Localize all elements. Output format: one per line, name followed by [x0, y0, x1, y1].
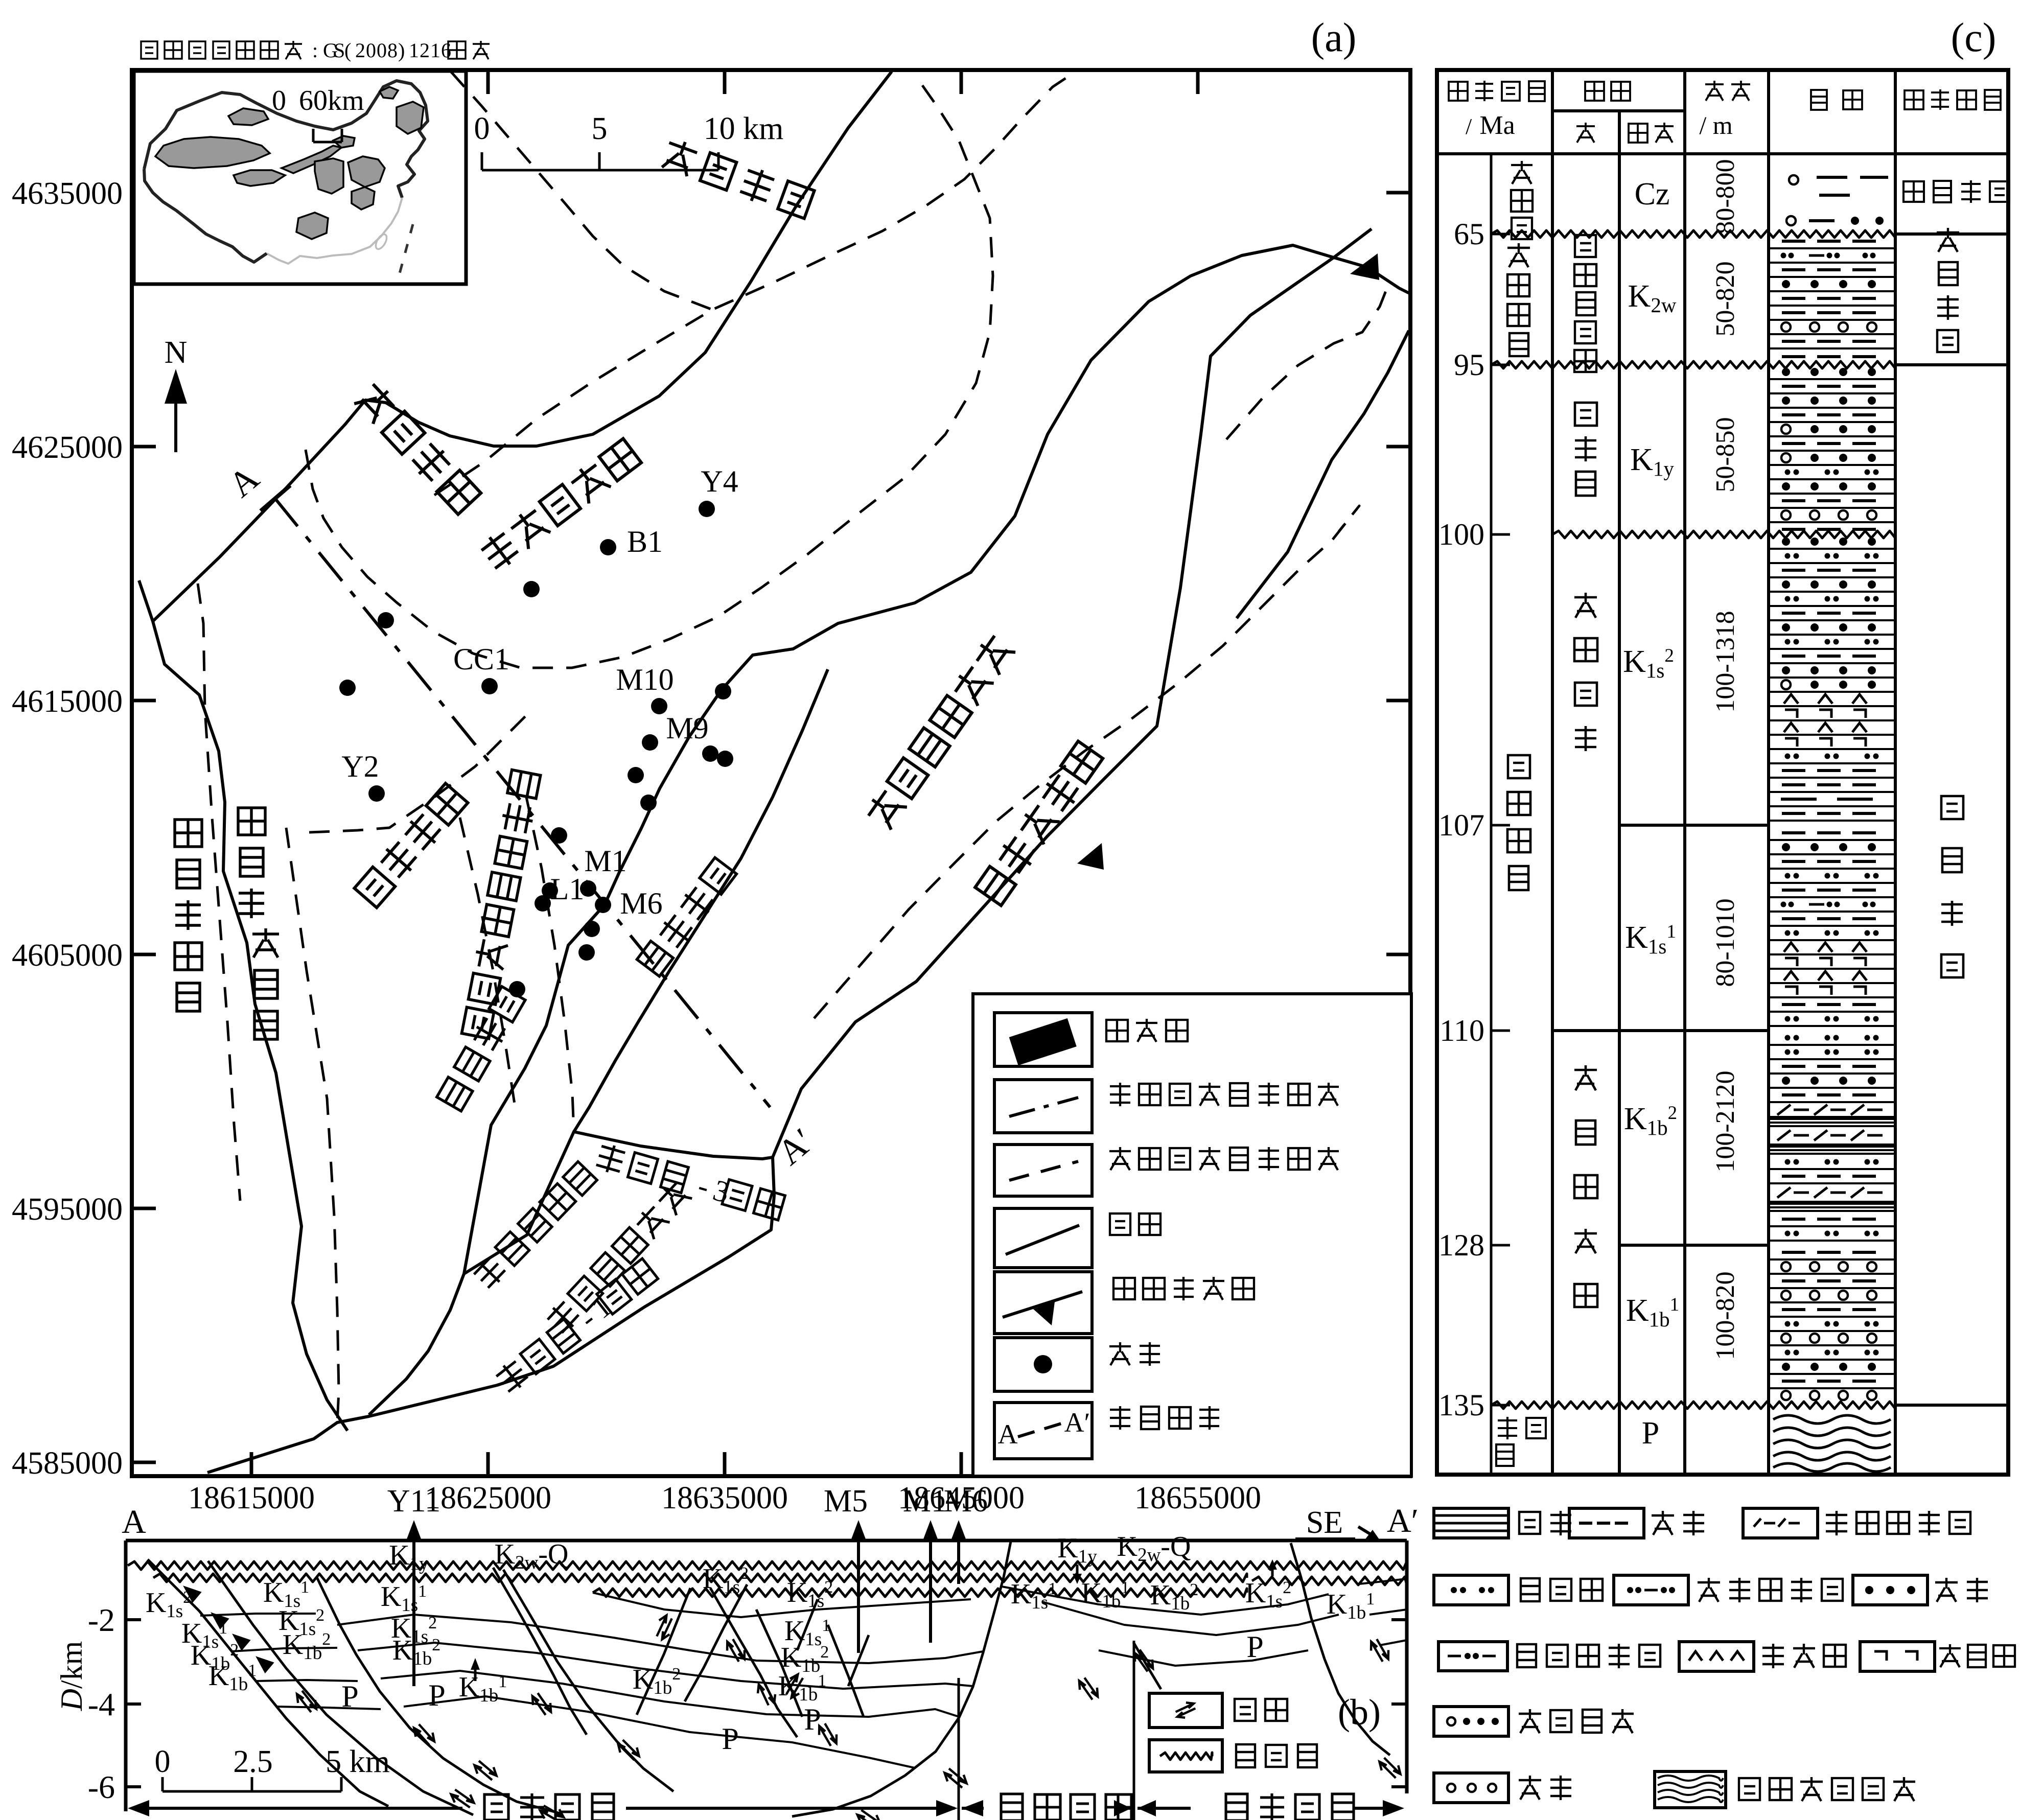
svg-text:N: N [165, 335, 188, 370]
svg-text:2: 2 [420, 39, 430, 62]
svg-text:50-820: 50-820 [1711, 261, 1740, 336]
svg-text:4615000: 4615000 [12, 684, 123, 719]
svg-text:-2: -2 [88, 1602, 115, 1638]
svg-text:65: 65 [1454, 217, 1484, 251]
svg-text:Y11: Y11 [387, 1484, 440, 1519]
svg-text:M10: M10 [616, 663, 674, 696]
svg-text:60km: 60km [299, 85, 364, 116]
svg-text:5: 5 [592, 111, 608, 146]
svg-text:-4: -4 [88, 1686, 115, 1722]
svg-text:100-2120: 100-2120 [1711, 1070, 1740, 1172]
svg-text:A: A [122, 1503, 146, 1541]
svg-text:-6: -6 [88, 1769, 115, 1805]
svg-text:100-820: 100-820 [1711, 1271, 1740, 1360]
svg-text:1: 1 [430, 39, 440, 62]
svg-text:(: ( [344, 39, 351, 62]
svg-text:M1: M1 [584, 844, 626, 878]
svg-text:2: 2 [355, 39, 365, 62]
svg-text:P: P [1642, 1416, 1659, 1451]
svg-text:P: P [341, 1679, 358, 1713]
svg-text:S: S [334, 39, 345, 62]
svg-text:50-850: 50-850 [1711, 417, 1740, 492]
svg-text:P: P [804, 1702, 821, 1736]
svg-text:M6: M6 [944, 1484, 988, 1519]
svg-text:P: P [1246, 1630, 1263, 1664]
svg-text:1: 1 [409, 39, 419, 62]
svg-text:5 km: 5 km [326, 1744, 390, 1779]
svg-text:M5: M5 [824, 1484, 868, 1519]
svg-text:0: 0 [272, 85, 286, 116]
svg-text:4605000: 4605000 [12, 938, 123, 973]
svg-text:M1: M1 [903, 1484, 947, 1519]
svg-text:/ m: / m [1699, 111, 1732, 139]
svg-text:18615000: 18615000 [188, 1481, 315, 1515]
svg-text:4635000: 4635000 [12, 176, 123, 211]
svg-text:Cz: Cz [1635, 177, 1670, 212]
svg-text:Y4: Y4 [701, 464, 738, 498]
svg-text:100: 100 [1438, 518, 1484, 551]
svg-text:107: 107 [1438, 808, 1484, 842]
svg-text:95: 95 [1454, 348, 1484, 382]
svg-text::: : [312, 39, 318, 62]
svg-text:Ma: Ma [1479, 111, 1515, 140]
svg-text:100-1318: 100-1318 [1711, 611, 1740, 712]
svg-text:18625000: 18625000 [425, 1481, 551, 1515]
svg-text:128: 128 [1438, 1228, 1484, 1262]
svg-text:2.5: 2.5 [233, 1744, 273, 1779]
svg-text:D/km: D/km [55, 1641, 88, 1712]
svg-text:0: 0 [377, 39, 387, 62]
svg-text:0: 0 [474, 111, 490, 146]
svg-text:(c): (c) [1951, 15, 1996, 60]
svg-text:18635000: 18635000 [661, 1481, 788, 1515]
svg-text:110: 110 [1439, 1014, 1484, 1047]
svg-text:A′: A′ [1387, 1502, 1419, 1539]
svg-text:/: / [1466, 114, 1472, 139]
svg-text:): ) [398, 39, 405, 62]
svg-text:A: A [998, 1419, 1018, 1450]
svg-text:0: 0 [155, 1744, 171, 1779]
svg-text:B1: B1 [627, 525, 663, 558]
svg-text:M6: M6 [620, 886, 662, 920]
svg-text:SE: SE [1306, 1505, 1343, 1540]
svg-text:8: 8 [387, 39, 398, 62]
svg-text:L1: L1 [550, 872, 585, 906]
svg-text:80-1010: 80-1010 [1711, 898, 1740, 987]
svg-text:18655000: 18655000 [1134, 1481, 1261, 1515]
svg-text:(b): (b) [1338, 1692, 1381, 1733]
svg-text:10 km: 10 km [704, 111, 784, 146]
svg-text:A′: A′ [1064, 1407, 1090, 1438]
svg-text:M9: M9 [666, 711, 708, 745]
svg-text:(a): (a) [1311, 15, 1357, 60]
svg-text:CC1: CC1 [453, 642, 509, 676]
svg-text:80-800: 80-800 [1711, 159, 1740, 234]
svg-text:135: 135 [1438, 1388, 1484, 1422]
svg-text:P: P [722, 1722, 738, 1756]
svg-text:4585000: 4585000 [12, 1446, 123, 1481]
svg-text:Y2: Y2 [341, 750, 379, 783]
svg-text:P: P [428, 1678, 445, 1712]
svg-text:0: 0 [366, 39, 376, 62]
svg-text:4625000: 4625000 [12, 430, 123, 465]
svg-text:4595000: 4595000 [12, 1192, 123, 1227]
